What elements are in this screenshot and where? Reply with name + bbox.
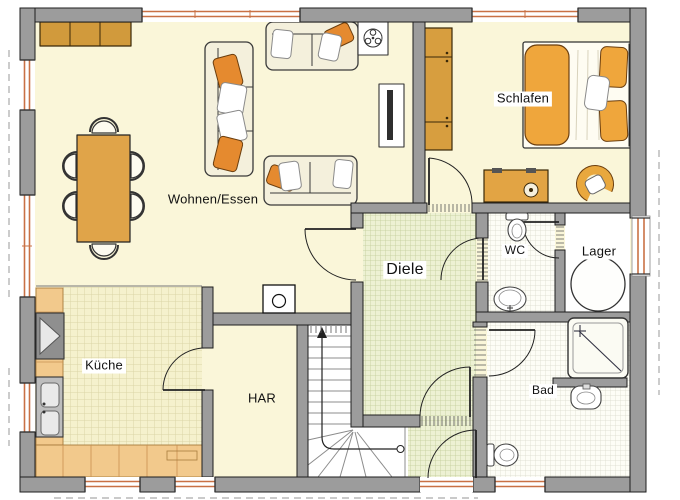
- desk: [484, 168, 548, 202]
- tv-icon: [387, 90, 393, 140]
- stair-floor-upper: [308, 325, 351, 427]
- wall-bedroom-partition: [413, 22, 425, 203]
- window-right-storage: [632, 216, 650, 276]
- hall-threshold-floor: [420, 415, 473, 427]
- window-bottom-har: [175, 477, 215, 492]
- storage-tank: [571, 257, 625, 311]
- entrance-door-sill: [420, 477, 473, 492]
- floor-plan: Wohnen/Essen Schlafen Küche HAR Diele WC…: [0, 0, 680, 500]
- dining-table: [77, 135, 130, 242]
- bath-toilet: [487, 444, 518, 466]
- room-label-wc: WC: [502, 244, 528, 258]
- pillow: [584, 75, 611, 112]
- room-label-schlafen: Schlafen: [494, 92, 552, 107]
- room-label-har: HAR: [248, 391, 276, 406]
- room-label-lager: Lager: [579, 245, 619, 260]
- bath-sink: [571, 384, 601, 409]
- hall-floor: [363, 213, 476, 415]
- entry-floor: [408, 427, 473, 477]
- room-label-kueche: Küche: [82, 359, 126, 374]
- stair-floor-winder: [308, 427, 408, 477]
- room-label-wohnen-essen: Wohnen/Essen: [168, 192, 258, 207]
- tv-board: [379, 84, 404, 147]
- window-left-kitchen: [20, 383, 35, 432]
- stove: [36, 313, 64, 359]
- wc-sink: [494, 287, 526, 311]
- chimney: [263, 285, 295, 313]
- window-left-dining: [20, 195, 35, 297]
- window-bottom-kitchen: [85, 477, 140, 492]
- room-label-bad: Bad: [529, 384, 557, 398]
- side-table: [358, 22, 388, 55]
- wc-toilet: [506, 213, 528, 241]
- pillow: [333, 159, 354, 189]
- sofa-left: [205, 42, 253, 176]
- room-label-diele: Diele: [383, 261, 426, 279]
- sofa-bottom: [264, 156, 357, 205]
- sofa-top: [266, 21, 358, 70]
- shower: [568, 318, 628, 378]
- window-bottom-bath: [495, 477, 545, 492]
- sideboard: [40, 22, 131, 46]
- pillow: [217, 82, 248, 116]
- window-left-upper: [20, 60, 35, 110]
- kitchen-sink: [36, 377, 63, 437]
- pillow: [271, 29, 294, 59]
- window-top-living: [142, 8, 300, 22]
- window-top-bedroom: [472, 8, 578, 22]
- pillow: [278, 161, 302, 192]
